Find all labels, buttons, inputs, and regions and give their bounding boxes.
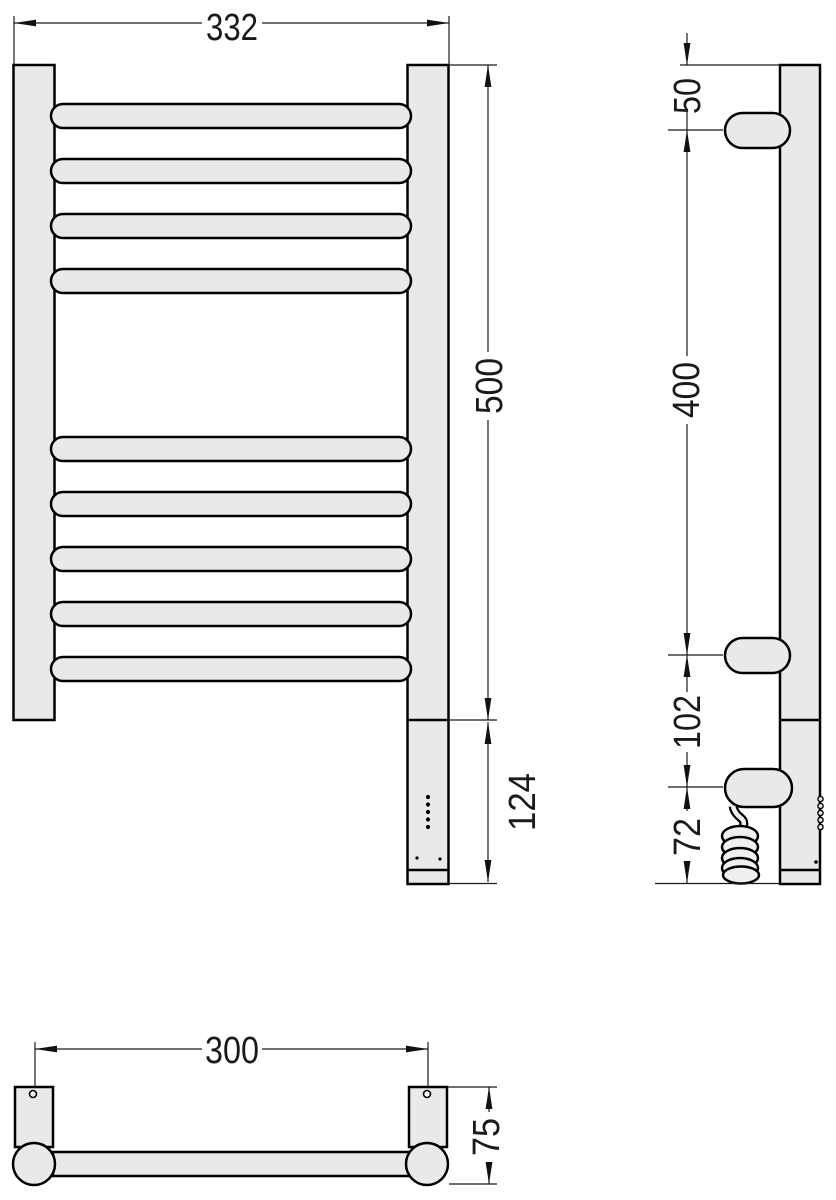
rung [51,602,411,626]
dim-label-heating-element: 124 [502,773,544,831]
drawing-canvas: 332 500 124 [0,0,836,1200]
dim-top-to-bracket: 50 [667,33,709,130]
collector-section-right [406,1143,448,1185]
dim-label-overall-height: 500 [469,358,511,414]
rung [51,269,411,293]
wall-bracket-top [725,113,790,148]
dim-bracket-spacing: 400 [666,130,708,655]
side-view: 50 400 102 72 [655,33,823,884]
dim-connection-to-bottom: 72 [667,787,709,883]
rungs [51,104,411,681]
dim-depth: 75 [447,1087,508,1184]
dim-label-top-to-bracket: 50 [667,78,709,114]
mounting-hole-left [30,1091,37,1098]
rung [51,492,411,516]
side-profile-bar [780,65,820,884]
rung [51,657,411,681]
rung [51,214,411,238]
side-extension-lines [655,65,780,884]
dim-heating-element: 124 [450,722,544,884]
dim-label-overall-width: 332 [206,7,258,49]
dim-bracket-to-connection: 102 [667,655,709,787]
collector-section-left [13,1143,55,1185]
wall-bracket-bottom [725,638,790,673]
dim-label-connection-to-bottom: 72 [667,818,709,856]
dim-label-bracket-spacing: 400 [666,362,708,418]
rung [51,159,411,183]
rung [51,547,411,571]
dim-mounting-centres: 300 [35,1030,428,1086]
dim-overall-width: 332 [14,7,449,64]
dim-overall-height: 500 [450,65,511,720]
dim-label-bracket-to-connection: 102 [667,695,709,749]
right-collector-with-heating-element [408,65,449,884]
rung [51,437,411,461]
mounting-hole-right [424,1091,431,1098]
rung [51,104,411,128]
spiral-cable [722,806,759,884]
left-collector [14,65,55,720]
power-connection-box [725,769,792,807]
dim-label-mounting-centres: 300 [205,1030,259,1072]
towel-rail-technical-drawing: 332 500 124 [0,0,836,1200]
front-view: 332 500 124 [14,7,545,884]
bottom-view: 300 75 [13,1030,508,1185]
rung-plan-section [53,1152,409,1176]
dim-label-depth: 75 [466,1118,508,1156]
